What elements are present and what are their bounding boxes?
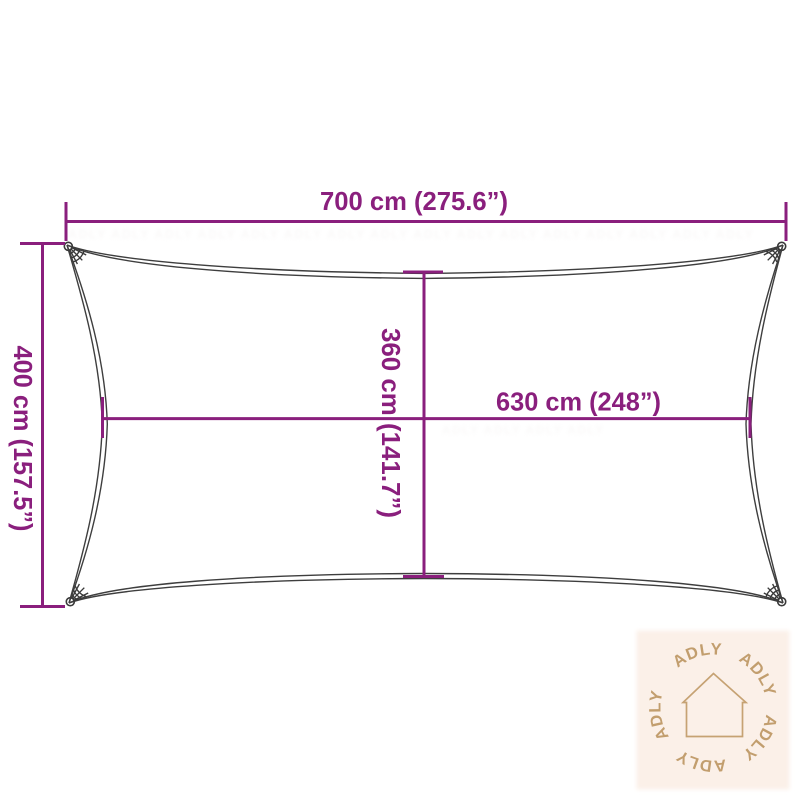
svg-text:ADLY ADLY ADLY ADLY: ADLY ADLY ADLY ADLY <box>442 423 605 437</box>
svg-text:700 cm (275.6”): 700 cm (275.6”) <box>320 186 508 216</box>
svg-text:ADLY ADLY ADLY ADLY ADLY ADLY: ADLY ADLY ADLY ADLY ADLY ADLY ADLY ADLY … <box>68 228 754 242</box>
svg-text:630 cm (248”): 630 cm (248”) <box>496 387 661 417</box>
svg-text:360 cm (141.7”): 360 cm (141.7”) <box>376 328 406 518</box>
svg-text:400 cm (157.5”): 400 cm (157.5”) <box>8 346 38 532</box>
